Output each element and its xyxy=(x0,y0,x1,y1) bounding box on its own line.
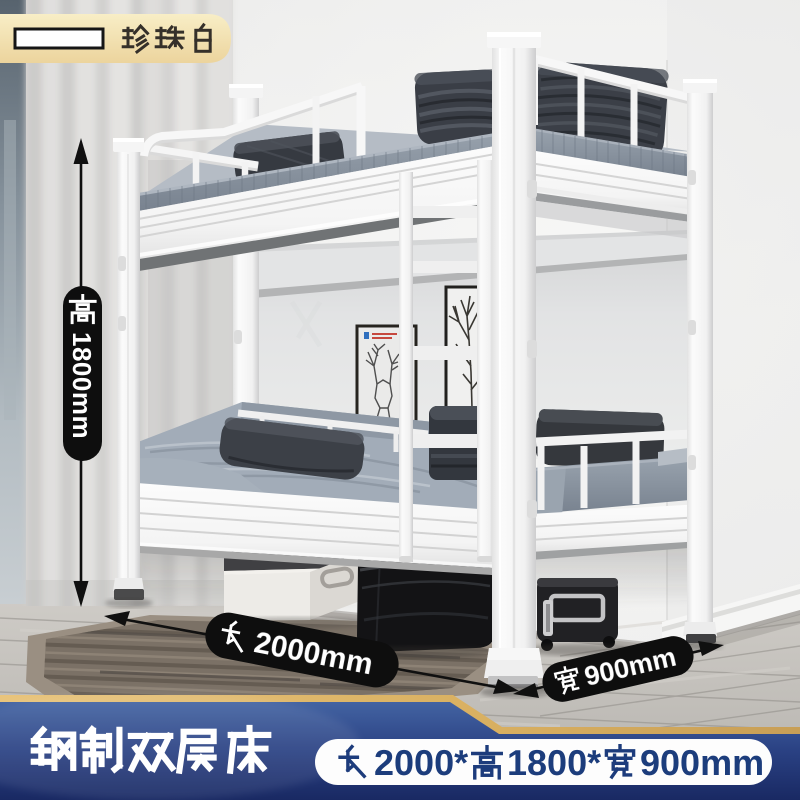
svg-text:2000*: 2000* xyxy=(374,742,468,783)
svg-text:1800*: 1800* xyxy=(507,742,601,783)
svg-text:1800mm: 1800mm xyxy=(67,332,97,439)
svg-text:900mm: 900mm xyxy=(640,742,764,783)
